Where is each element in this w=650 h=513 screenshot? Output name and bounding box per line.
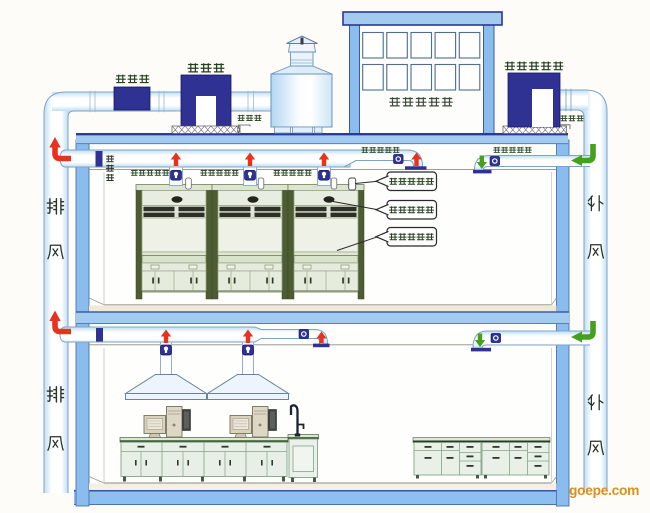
svg-text:goepe.com: goepe.com [569,483,639,498]
